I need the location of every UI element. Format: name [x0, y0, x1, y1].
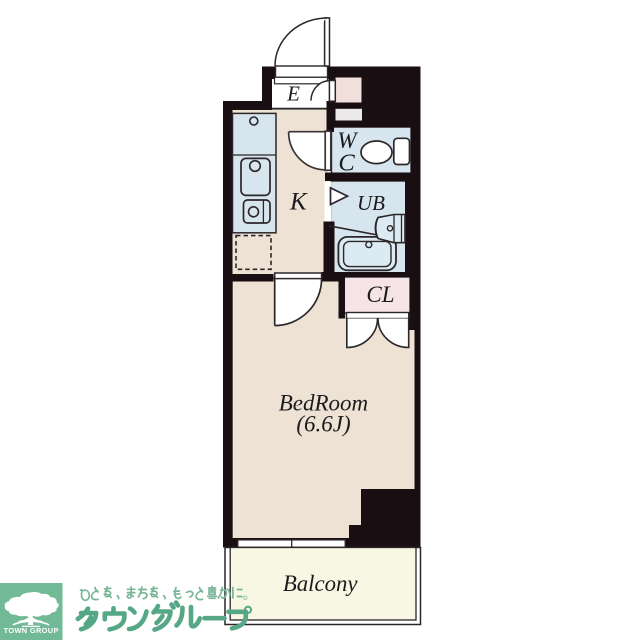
svg-text:CL: CL — [366, 282, 394, 307]
svg-text:K: K — [289, 189, 308, 216]
svg-text:E: E — [286, 81, 300, 105]
svg-text:UB: UB — [357, 191, 385, 215]
svg-text:Balcony: Balcony — [283, 571, 359, 596]
svg-text:C: C — [338, 150, 355, 177]
svg-text:TOWN GROUP: TOWN GROUP — [4, 626, 59, 635]
svg-text:(6.6J): (6.6J) — [296, 412, 350, 437]
